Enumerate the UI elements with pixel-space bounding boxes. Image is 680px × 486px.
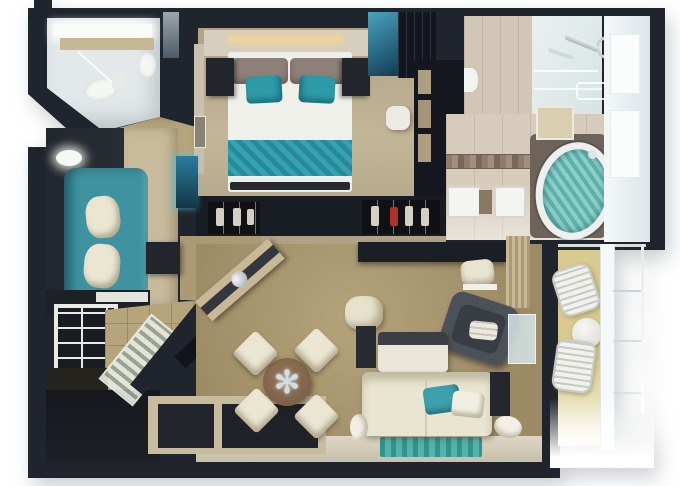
railing-rung: [613, 340, 641, 342]
round-dining-table: ✻: [263, 358, 311, 406]
window-pane: [610, 34, 640, 94]
ottoman-pouf: [345, 296, 383, 330]
nightstand-left: [206, 58, 234, 96]
white-throw-pillow: [451, 390, 485, 418]
desk-tray: [463, 284, 497, 290]
floor-plan-render: ✻: [0, 0, 680, 486]
railing-rung: [613, 392, 641, 394]
headboard-light-strip: [230, 37, 342, 42]
armchair-pillow: [469, 320, 499, 341]
bathroom-cabinet: [536, 106, 574, 140]
guest-bathroom-sink: [138, 52, 156, 78]
desk-chair: [460, 258, 495, 286]
bolster-cushion: [350, 414, 368, 440]
lounge-side-table: [146, 242, 180, 274]
glass-shelf-line: [534, 70, 598, 72]
toilet-tank: [112, 72, 125, 89]
teal-area-rug: [380, 437, 482, 457]
balcony-glass-door: [508, 314, 536, 364]
nightstand-right: [342, 58, 370, 96]
curtain-panel: [506, 236, 530, 308]
balcony-railing-outer-edge: [641, 244, 644, 414]
suite-plan: ✻: [0, 0, 680, 486]
entry-dark-floor: [46, 390, 160, 462]
shower-glass-enclosure: [532, 16, 602, 116]
wardrobe-shelf: [418, 100, 431, 128]
shoe: [371, 206, 379, 226]
sink-right: [494, 186, 526, 218]
teal-glass-panel: [368, 12, 398, 76]
cream-pillow: [84, 194, 122, 239]
table-star-decor: ✻: [274, 366, 301, 398]
red-shoe: [390, 207, 398, 226]
sink-left: [447, 186, 481, 218]
side-cube-table: [356, 326, 376, 368]
guest-bathroom-vanity-counter: [60, 38, 154, 50]
teal-bed-runner: [228, 140, 352, 176]
wall-sink: [464, 68, 478, 92]
vanity-stool: [386, 106, 410, 130]
dresser-top: [96, 292, 148, 302]
sofa-end-table: [490, 372, 510, 416]
tub-faucet: [588, 150, 597, 159]
wall-art: [194, 116, 206, 148]
window-bench-panel: [158, 404, 214, 448]
wardrobe-shelf: [418, 134, 431, 162]
bedroom-wall-face: [194, 44, 204, 174]
vanity-divider: [479, 190, 492, 214]
shoe: [405, 206, 413, 226]
shoe: [216, 208, 224, 226]
shoe: [247, 209, 254, 225]
coffee-table: [378, 332, 448, 372]
wardrobe-shelf: [418, 70, 431, 94]
teal-accent-pillow-left: [245, 75, 282, 104]
balcony-fade: [550, 398, 654, 468]
window-pane: [610, 110, 640, 178]
shower-tiled-wall: [464, 16, 534, 116]
guest-bathroom-ceiling-light: [54, 24, 152, 37]
shoe: [233, 208, 241, 226]
balcony-wire-chair: [551, 337, 598, 394]
shoe: [421, 208, 429, 226]
floor-lamp: [56, 150, 82, 166]
structural-column: [163, 12, 179, 58]
coffee-table-runner: [378, 332, 448, 345]
railing-rung: [613, 290, 641, 292]
bed-footboard: [230, 182, 350, 190]
teal-accent-pillow-right: [298, 75, 335, 104]
backlit-cabinet: [176, 156, 198, 208]
